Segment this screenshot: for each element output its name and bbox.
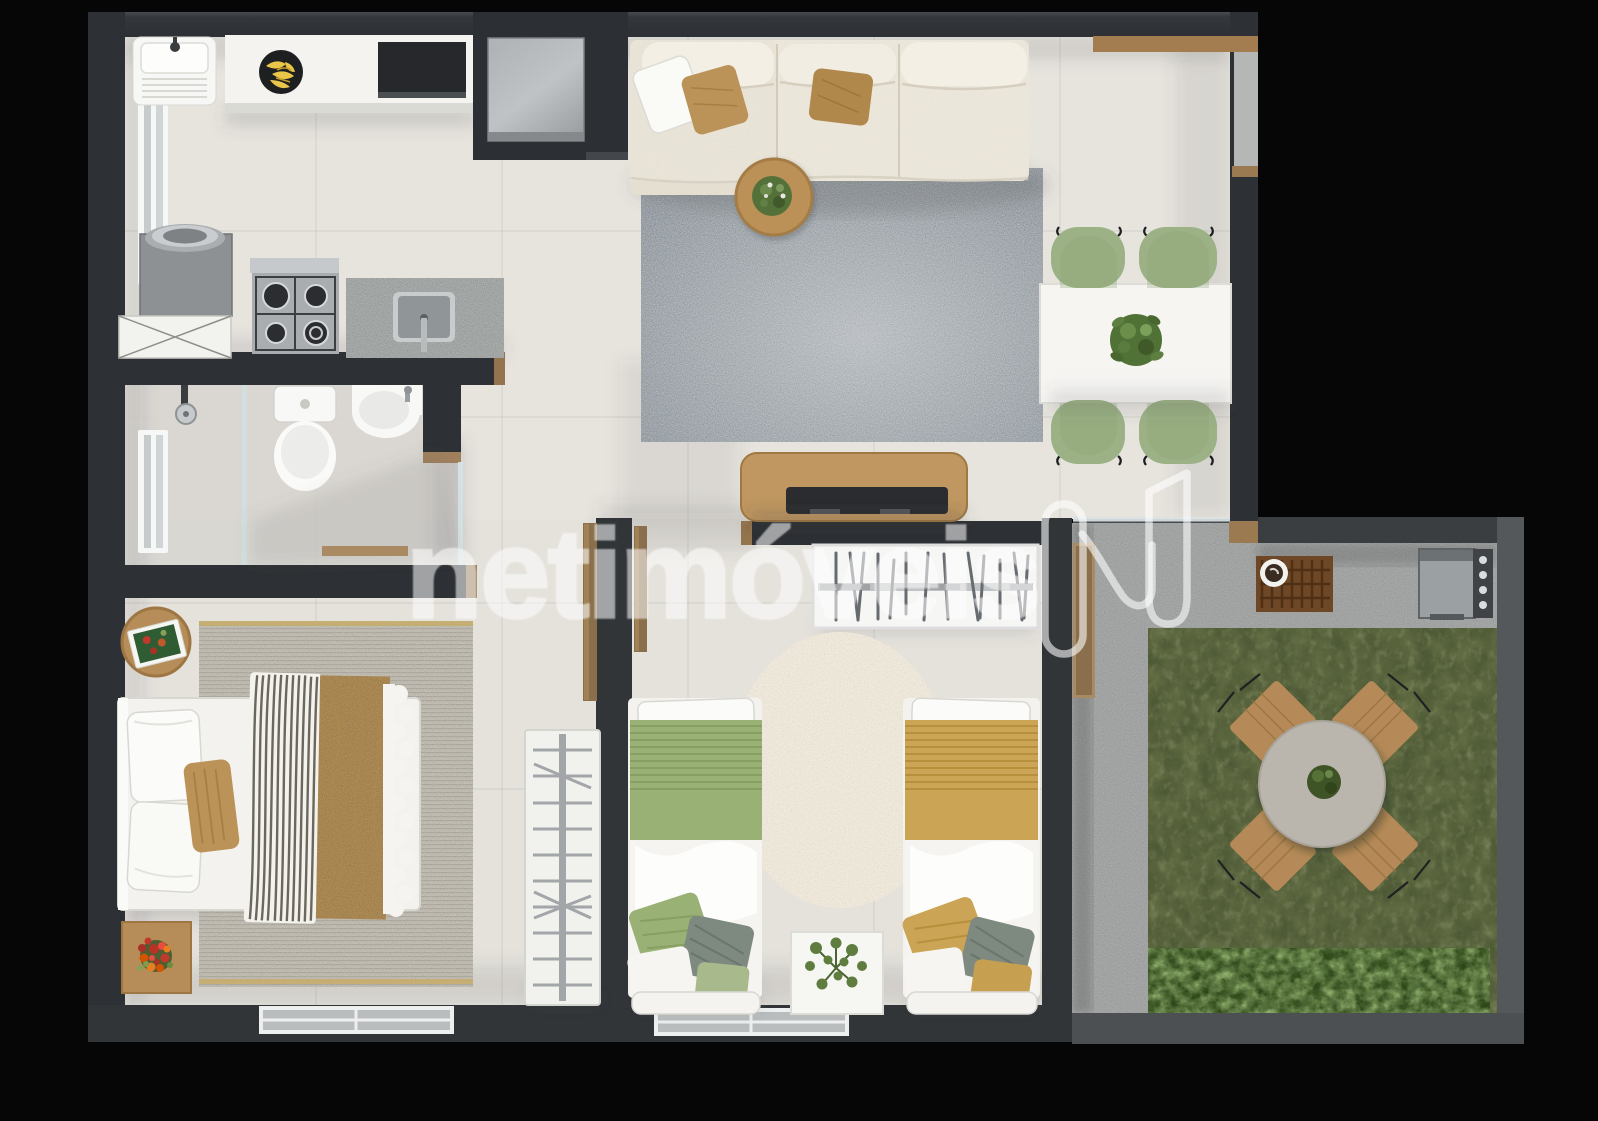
svg-text:netimóveis: netimóveis xyxy=(406,505,1039,644)
